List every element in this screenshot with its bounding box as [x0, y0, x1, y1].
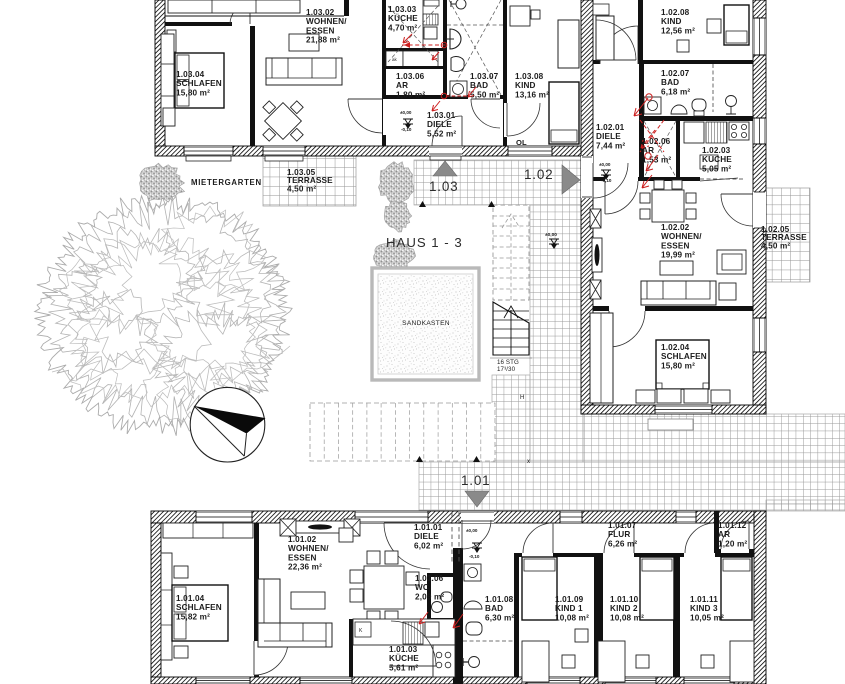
svg-text:1.03: 1.03 [429, 179, 458, 194]
svg-text:±0,00: ±0,00 [466, 528, 478, 533]
svg-text:-0,10: -0,10 [601, 178, 612, 183]
svg-text:1.03.03KÜCHE4,70 m²: 1.03.03KÜCHE4,70 m² [388, 5, 418, 32]
svg-text:HAUS 1 - 3: HAUS 1 - 3 [386, 235, 463, 250]
svg-text:-0,10: -0,10 [401, 127, 412, 132]
svg-text:1.02.03KÜCHE5,05 m²: 1.02.03KÜCHE5,05 m² [702, 146, 732, 173]
svg-text:x: x [527, 459, 530, 465]
svg-text:MIETERGARTEN: MIETERGARTEN [191, 178, 262, 187]
svg-text:SANDKASTEN: SANDKASTEN [402, 320, 450, 327]
svg-text:1.02: 1.02 [524, 167, 553, 182]
svg-text:1.01.03KÜCHE5,61 m²: 1.01.03KÜCHE5,61 m² [389, 645, 419, 672]
svg-text:OL: OL [516, 138, 527, 147]
svg-text:1.01: 1.01 [461, 473, 490, 488]
svg-text:±0,00: ±0,00 [545, 232, 557, 238]
svg-text:±0,00: ±0,00 [599, 162, 611, 167]
svg-text:ak: ak [392, 57, 398, 62]
svg-text:±0,00: ±0,00 [400, 110, 412, 115]
svg-text:-0,10: -0,10 [469, 554, 480, 559]
svg-text:H: H [520, 395, 524, 401]
